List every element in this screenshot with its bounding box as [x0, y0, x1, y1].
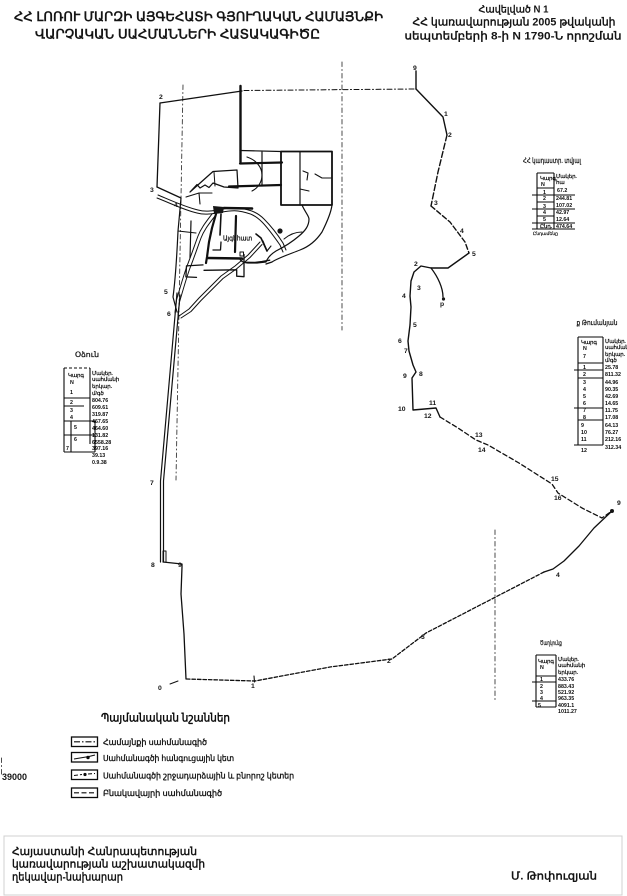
svg-text:12.64: 12.64	[556, 217, 569, 223]
svg-text:2: 2	[543, 196, 546, 202]
svg-text:131.82: 131.82	[92, 433, 108, 439]
svg-text:17.08: 17.08	[605, 415, 618, 421]
svg-text:4: 4	[70, 415, 73, 421]
svg-text:1: 1	[583, 365, 586, 371]
svg-text:p: p	[440, 301, 444, 308]
svg-text:11.75: 11.75	[605, 408, 618, 414]
svg-text:76.27: 76.27	[605, 430, 618, 436]
svg-text:ՎԱՐՉԱԿԱՆ ՍԱՀՄԱՆՆԵՐԻ ՀԱՏԱԿԱԳԻԾԸ: ՎԱՐՉԱԿԱՆ ՍԱՀՄԱՆՆԵՐԻ ՀԱՏԱԿԱԳԻԾԸ	[35, 27, 320, 42]
svg-text:10: 10	[581, 430, 587, 436]
svg-text:1: 1	[70, 390, 73, 396]
svg-text:64.13: 64.13	[605, 423, 618, 429]
svg-text:ղեկավար-նախարար: ղեկավար-նախարար	[12, 872, 123, 884]
svg-text:14.65: 14.65	[605, 401, 618, 407]
svg-text:5: 5	[583, 394, 586, 400]
svg-text:474.64: 474.64	[556, 224, 572, 230]
svg-text:609.61: 609.61	[92, 405, 108, 411]
svg-text:4: 4	[540, 696, 543, 702]
svg-text:811.32: 811.32	[605, 372, 621, 378]
svg-text:11: 11	[581, 437, 587, 443]
svg-text:2: 2	[159, 94, 163, 101]
svg-text:7: 7	[150, 480, 154, 487]
svg-text:մ/գծ: մ/գծ	[605, 358, 617, 364]
svg-text:հա: հա	[556, 179, 565, 186]
svg-text:Հայաստանի Հանրապետության: Հայաստանի Հանրապետության	[12, 846, 197, 858]
svg-text:սեպտեմբերի 8-ի N 1790-Ն որոշմ: սեպտեմբերի 8-ի N 1790-Ն որոշման	[405, 31, 622, 43]
svg-text:13: 13	[475, 432, 483, 439]
svg-text:9: 9	[413, 65, 417, 72]
svg-text:Մ. Թոփուզյան: Մ. Թոփուզյան	[511, 871, 597, 883]
svg-text:N: N	[540, 665, 544, 671]
svg-text:10: 10	[398, 406, 406, 413]
svg-text:8: 8	[583, 415, 586, 421]
svg-text:6: 6	[74, 437, 77, 443]
svg-text:երկար.: երկար.	[558, 670, 579, 676]
svg-text:9: 9	[617, 500, 621, 507]
svg-text:397.16: 397.16	[92, 446, 108, 452]
svg-text:3: 3	[150, 187, 154, 194]
svg-text:107.02: 107.02	[556, 203, 572, 209]
svg-text:244.81: 244.81	[556, 196, 572, 202]
svg-text:8: 8	[151, 562, 155, 569]
svg-text:Ծաղկունք: Ծաղկունք	[540, 639, 563, 647]
svg-text:Բնակավայրի սահմանագիծ: Բնակավայրի սահմանագիծ	[103, 788, 222, 798]
svg-text:2: 2	[583, 372, 586, 378]
svg-text:Օձուն: Օձուն	[75, 350, 99, 359]
svg-text:2: 2	[387, 658, 391, 665]
svg-text:9: 9	[178, 562, 182, 569]
svg-text:42.97: 42.97	[556, 210, 569, 216]
svg-text:Սահմանագծի շրջադարձային և բնոր: Սահմանագծի շրջադարձային և բնորոշ կետեր	[103, 771, 294, 781]
svg-text:1: 1	[540, 677, 543, 683]
svg-text:5: 5	[538, 703, 541, 709]
svg-text:4: 4	[543, 210, 546, 216]
svg-text:6: 6	[583, 401, 586, 407]
svg-text:9: 9	[581, 423, 584, 429]
svg-text:6: 6	[167, 311, 171, 318]
svg-text:1: 1	[444, 111, 448, 118]
svg-text:4: 4	[402, 293, 406, 300]
svg-text:Պայմանական նշաններ: Պայմանական նշաններ	[101, 712, 230, 725]
svg-text:2: 2	[448, 132, 452, 139]
svg-text:սահմանի: սահմանի	[92, 376, 119, 383]
svg-text:N: N	[70, 380, 74, 386]
svg-text:8: 8	[419, 371, 423, 378]
svg-text:319.87: 319.87	[92, 412, 108, 418]
svg-text:15: 15	[551, 476, 559, 483]
svg-text:212.16: 212.16	[605, 437, 621, 443]
svg-text:39.13: 39.13	[92, 453, 105, 459]
svg-text:433.76: 433.76	[558, 677, 574, 683]
svg-text:464.60: 464.60	[92, 426, 108, 432]
svg-text:804.76: 804.76	[92, 398, 108, 404]
svg-text:7: 7	[583, 408, 586, 414]
svg-text:3: 3	[70, 408, 73, 414]
svg-text:14: 14	[478, 447, 486, 454]
svg-text:Սահմանագծի հանգուցային կետ: Սահմանագծի հանգուցային կետ	[103, 753, 234, 764]
svg-text:ՀՀ ԼՈՌՈՒ ՄԱՐԶԻ ԱՅԳԵՀԱՏԻ ԳՅՈՒՂ: ՀՀ ԼՈՌՈՒ ՄԱՐԶԻ ԱՅԳԵՀԱՏԻ ԳՅՈՒՂԱԿԱՆ ՀԱՄԱՅՆ…	[14, 9, 383, 24]
svg-text:3: 3	[417, 285, 421, 292]
svg-text:N: N	[583, 346, 587, 352]
svg-text:Համայնքի սահմանագիծ: Համայնքի սահմանագիծ	[103, 737, 207, 747]
svg-text:12: 12	[581, 448, 587, 454]
svg-text:5: 5	[543, 217, 546, 223]
svg-text:4: 4	[460, 228, 464, 235]
svg-text:4: 4	[583, 387, 586, 393]
svg-text:44.96: 44.96	[605, 380, 618, 386]
svg-text:5: 5	[74, 425, 77, 431]
svg-text:5: 5	[472, 251, 476, 258]
svg-text:7: 7	[583, 354, 586, 360]
svg-text:ք Թումանյան: ք Թումանյան	[576, 319, 618, 327]
svg-text:2: 2	[70, 400, 73, 406]
svg-text:0.9.38: 0.9.38	[92, 460, 107, 466]
svg-text:3: 3	[421, 634, 425, 641]
svg-text:5: 5	[164, 289, 168, 296]
svg-text:0: 0	[158, 685, 162, 692]
svg-text:11: 11	[429, 400, 436, 407]
svg-text:6: 6	[398, 338, 402, 345]
svg-text:մ/գծ: մ/գծ	[92, 391, 104, 397]
svg-text:3: 3	[583, 380, 586, 386]
svg-text:4: 4	[556, 572, 560, 579]
svg-text:42.69: 42.69	[605, 394, 618, 400]
svg-text:N: N	[541, 182, 545, 188]
svg-text:7: 7	[66, 446, 69, 452]
svg-text:963.35: 963.35	[558, 696, 574, 702]
svg-text:սահմանի: սահմանի	[605, 344, 627, 351]
svg-text:ՀՀ կադաստր. տվյալ: ՀՀ կադաստր. տվյալ	[523, 156, 582, 165]
svg-text:Կարգ: Կարգ	[68, 373, 84, 379]
svg-text:90.35: 90.35	[605, 387, 618, 393]
svg-text:4: 4	[174, 202, 178, 209]
svg-text:5: 5	[413, 322, 417, 329]
svg-text:25.78: 25.78	[605, 365, 618, 371]
svg-text:երկար.: երկար.	[92, 384, 113, 390]
svg-text:3: 3	[434, 200, 438, 207]
svg-text:Ընդամենը: Ընդամենը	[533, 231, 558, 237]
svg-text:սահմանի: սահմանի	[558, 662, 585, 669]
svg-text:312.34: 312.34	[605, 445, 621, 451]
svg-text:16: 16	[554, 495, 562, 502]
svg-text:2: 2	[414, 261, 418, 268]
svg-text:1011.27: 1011.27	[558, 709, 577, 715]
svg-text:Ընդ.: Ընդ.	[540, 224, 553, 230]
svg-text:Այգեհատ: Այգեհատ	[223, 234, 252, 243]
svg-text:467.65: 467.65	[92, 419, 108, 425]
svg-text:ՀՀ կառավարության 2005 թվականի: ՀՀ կառավարության 2005 թվականի	[413, 17, 616, 29]
svg-text:67.2: 67.2	[557, 188, 567, 194]
svg-text:9: 9	[403, 373, 407, 380]
svg-text:7: 7	[404, 348, 408, 355]
svg-text:39000: 39000	[2, 772, 27, 782]
svg-text:1: 1	[251, 683, 255, 690]
svg-text:կառավարության աշխատակազմի: կառավարության աշխատակազմի	[12, 859, 205, 871]
svg-text:Հավելված N 1: Հավելված N 1	[479, 5, 549, 16]
svg-text:12: 12	[424, 413, 432, 420]
